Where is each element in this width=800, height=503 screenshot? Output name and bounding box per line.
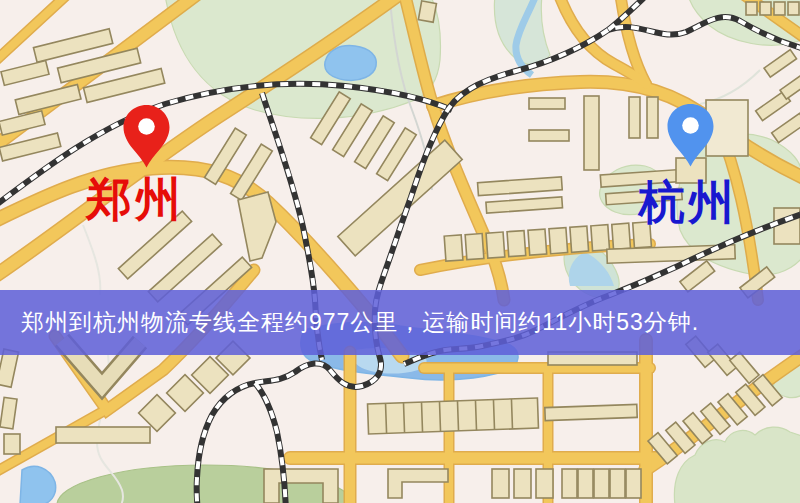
map-canvas[interactable] [0, 0, 800, 503]
logistics-map-image: 郑州 杭州 郑州到杭州物流专线全程约977公里，运输时间约11小时53分钟. [0, 0, 800, 503]
destination-city-label: 杭州 [639, 180, 737, 226]
route-info-text: 郑州到杭州物流专线全程约977公里，运输时间约11小时53分钟. [0, 307, 699, 338]
origin-city-label: 郑州 [86, 177, 184, 223]
route-info-banner: 郑州到杭州物流专线全程约977公里，运输时间约11小时53分钟. [0, 290, 800, 355]
